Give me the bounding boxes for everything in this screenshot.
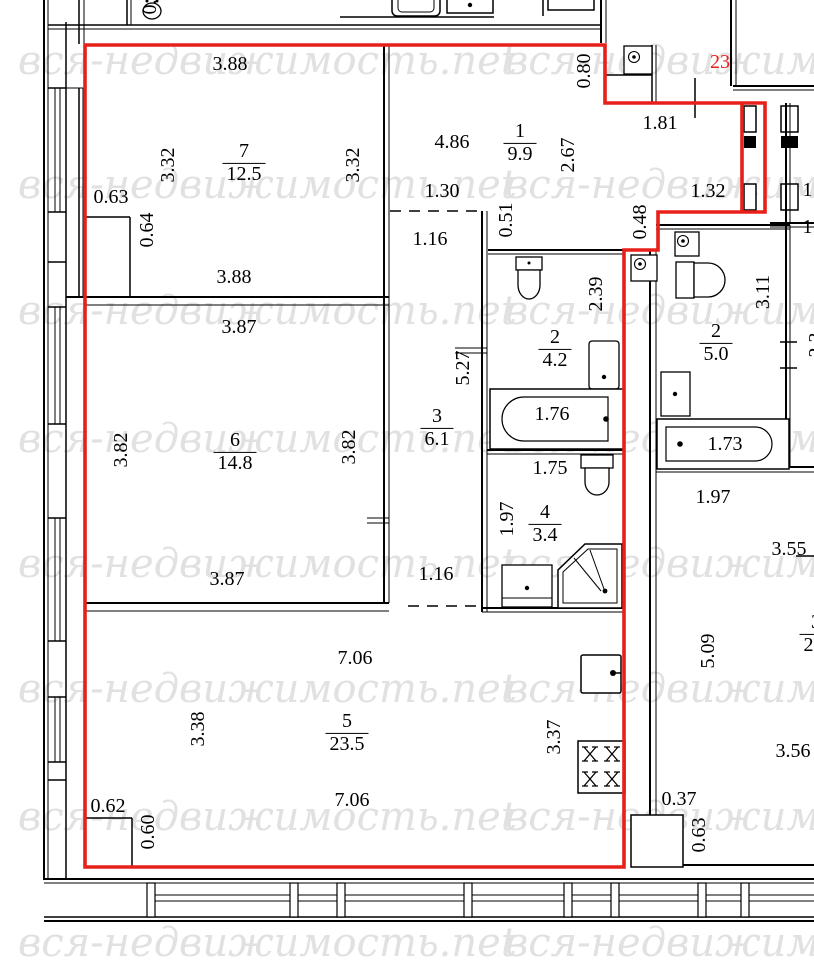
dim-step: 0.51 <box>496 203 516 238</box>
room-label-4: 4 3.4 <box>529 502 562 546</box>
room-label-6: 6 14.8 <box>214 430 257 474</box>
dim-niche5-width: 0.62 <box>91 796 126 816</box>
dim-room3r-top: 3.55 <box>772 539 807 559</box>
room-area: 5.0 <box>700 343 733 366</box>
dim-wc4-left: 1.97 <box>497 502 517 537</box>
room-label-2-right: 2 5.0 <box>700 321 733 365</box>
dim-jog-width: 0.37 <box>662 789 697 809</box>
room-label-3-right: 3 22. <box>800 612 814 656</box>
room-area: 23.5 <box>326 733 369 756</box>
dim-niche5-height: 0.60 <box>138 815 158 850</box>
dim-niche-width: 0.63 <box>94 187 129 207</box>
dim-bath2-height: 2.39 <box>586 277 606 312</box>
dim-room6-right: 3.82 <box>339 430 359 465</box>
dim-entry-side: 1.32 <box>691 181 726 201</box>
dim-cut-top: 0.38 <box>140 0 160 15</box>
room-number: 2 <box>550 327 560 349</box>
dim-room5-bottom: 7.06 <box>335 790 370 810</box>
dim-room5-top: 7.06 <box>338 648 373 668</box>
dim-cut-right-b: 1. <box>803 217 814 237</box>
dim-room7-top: 3.88 <box>213 54 248 74</box>
room-label-3: 3 6.1 <box>421 406 454 450</box>
room-label-1: 1 9.9 <box>504 121 537 165</box>
dim-room6-top: 3.87 <box>222 317 257 337</box>
dim-room7-left: 3.32 <box>158 148 178 183</box>
dim-room6-left: 3.82 <box>111 433 131 468</box>
room-label-2: 2 4.2 <box>539 327 572 371</box>
room-area: 3.4 <box>529 524 562 547</box>
room-number: 6 <box>230 430 240 452</box>
dim-corridor-height: 5.27 <box>453 351 473 386</box>
apartment-number: 23 <box>710 52 730 72</box>
dim-cut-right-c: 2.3 <box>806 333 814 358</box>
room-label-5: 5 23.5 <box>326 711 369 755</box>
room-label-7: 7 12.5 <box>223 141 266 185</box>
room-number: 5 <box>342 711 352 733</box>
room-number: 4 <box>540 502 550 524</box>
dim-wc4: 1.75 <box>533 458 568 478</box>
dim-room3r-bottom: 3.56 <box>776 741 811 761</box>
labels-layer: 23 3.88 3.32 3.32 0.63 0.64 3.88 3.87 3.… <box>0 0 814 960</box>
dim-cut-right-a: 1. <box>803 180 814 200</box>
dim-room5-left: 3.38 <box>188 712 208 747</box>
floorplan-canvas: вся-недвижимость.net вся-недвижимость.ne… <box>0 0 814 960</box>
room-area: 12.5 <box>223 163 266 186</box>
room-area: 14.8 <box>214 452 257 475</box>
dim-room7-right: 3.32 <box>343 148 363 183</box>
dim-room6-bottom: 3.87 <box>210 569 245 589</box>
dim-room7-bottom: 3.88 <box>217 267 252 287</box>
dim-entry-top: 0.80 <box>574 54 594 89</box>
dim-hall-width: 4.86 <box>435 132 470 152</box>
room-area: 6.1 <box>421 428 454 451</box>
room-number: 2 <box>711 321 721 343</box>
dim-opening-clear: 1.16 <box>413 229 448 249</box>
dim-bathtub-right: 1.73 <box>708 434 743 454</box>
room-number: 7 <box>239 141 249 163</box>
room-number: 1 <box>515 121 525 143</box>
dim-hall-height: 2.67 <box>558 138 578 173</box>
dim-room5-right: 3.37 <box>544 720 564 755</box>
dim-niche-height: 0.64 <box>137 213 157 248</box>
dim-room3r-left: 5.09 <box>698 634 718 669</box>
dim-opening: 1.30 <box>425 181 460 201</box>
dim-bath2r-height: 3.11 <box>753 275 773 309</box>
dim-corridor-bottom: 1.16 <box>419 564 454 584</box>
dim-entry-step: 0.48 <box>630 205 650 240</box>
dim-bath2r-width: 1.97 <box>696 487 731 507</box>
room-area: 9.9 <box>504 143 537 166</box>
room-number: 3 <box>432 406 442 428</box>
room-area: 22. <box>800 634 814 657</box>
dim-bathtub-left: 1.76 <box>535 404 570 424</box>
room-area: 4.2 <box>539 349 572 372</box>
dim-jog-height: 0.63 <box>689 818 709 853</box>
dim-entry-width: 1.81 <box>643 113 678 133</box>
